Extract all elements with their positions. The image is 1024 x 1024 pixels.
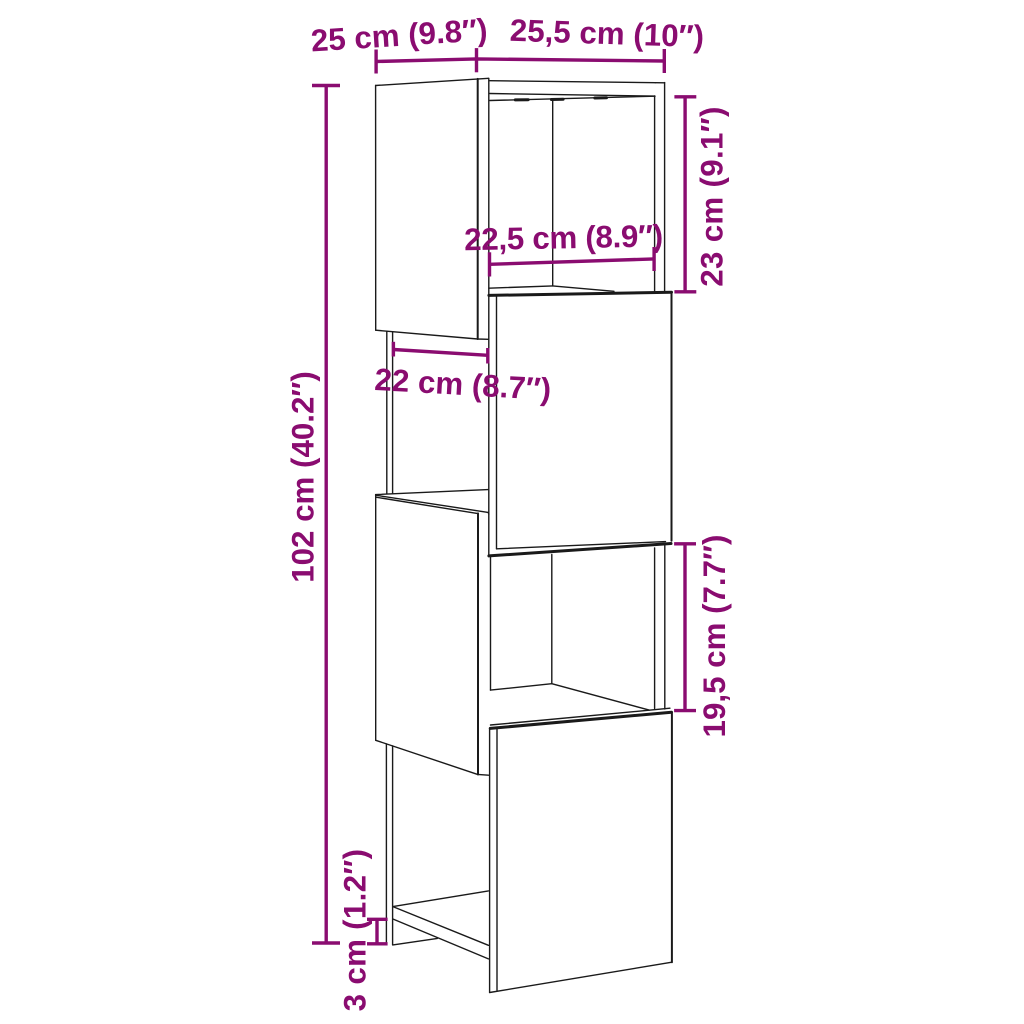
svg-text:19,5 cm (7.7″): 19,5 cm (7.7″) [697, 535, 732, 738]
svg-text:3 cm (1.2″): 3 cm (1.2″) [338, 849, 373, 1012]
svg-text:102 cm (40.2″): 102 cm (40.2″) [286, 371, 321, 583]
svg-text:23 cm (9.1″): 23 cm (9.1″) [695, 106, 730, 286]
svg-text:22,5 cm (8.9″): 22,5 cm (8.9″) [464, 218, 663, 257]
svg-text:25,5 cm (10″): 25,5 cm (10″) [509, 13, 704, 54]
